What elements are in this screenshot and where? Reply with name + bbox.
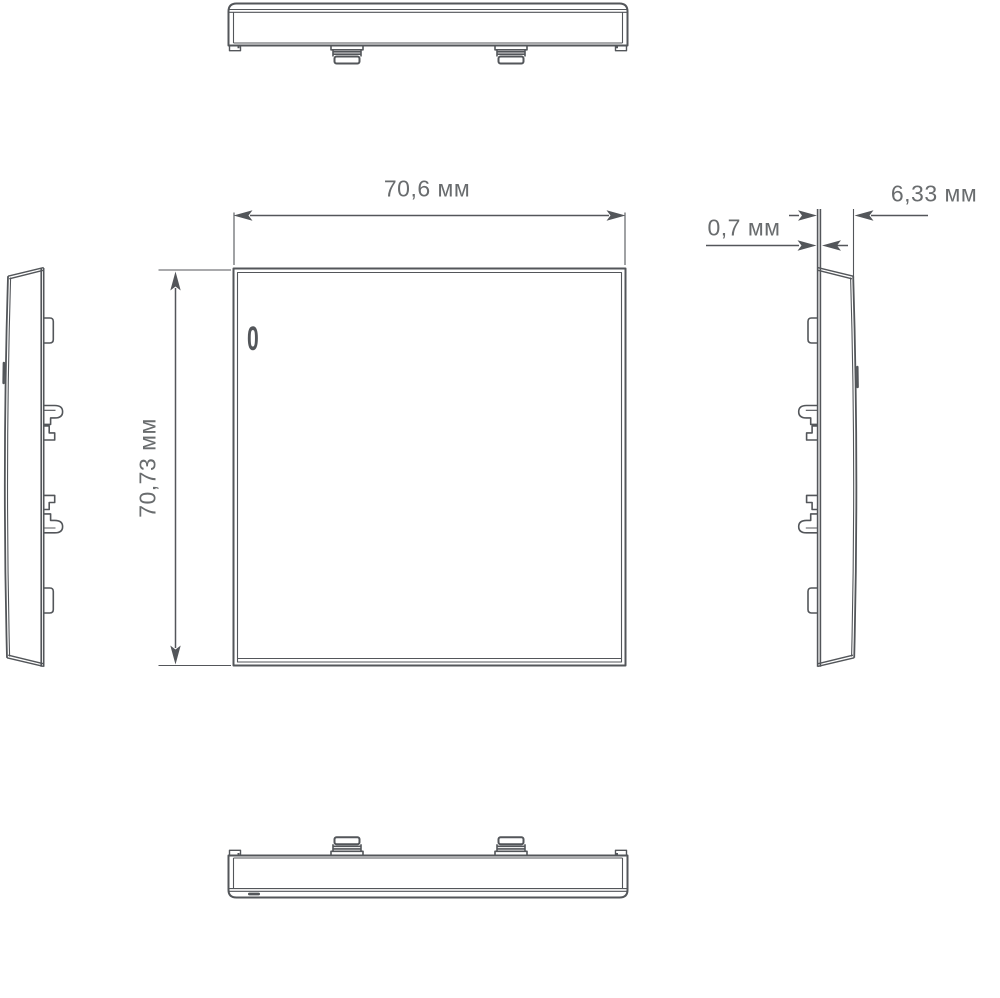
clip-flange xyxy=(331,851,363,855)
top-view xyxy=(229,4,628,64)
front-view-outer-border xyxy=(234,269,626,666)
clip-flange xyxy=(495,851,527,855)
clip-foot xyxy=(335,837,360,844)
thickness-dimension xyxy=(706,240,848,250)
dim-arrow-right-icon xyxy=(798,240,817,250)
thickness-dimension-label: 0,7 мм xyxy=(708,217,781,240)
clip-flange xyxy=(495,46,527,50)
right-view-front-curve-inner xyxy=(851,278,854,657)
clip-foot xyxy=(335,57,360,64)
technical-drawing-page: 70,6 мм 70,73 мм 0,7 мм 6,33 мм 0 xyxy=(0,0,1000,998)
clip-flange xyxy=(331,46,363,50)
left-view-front-curve-inner xyxy=(8,278,11,657)
clip-ribs xyxy=(333,844,361,851)
clip-ribs xyxy=(497,50,525,57)
right-view-back-edge xyxy=(818,209,821,667)
front-panel-marking: 0 xyxy=(247,322,259,356)
top-view-inner-lines xyxy=(234,12,623,43)
bottom-view-inner-lines xyxy=(234,858,623,889)
height-extension-lines xyxy=(159,270,232,666)
dim-arrow-right-icon xyxy=(607,210,626,220)
bottom-view-marking-dash xyxy=(248,893,260,896)
top-view-clip-right xyxy=(495,46,527,64)
front-view-inner-border xyxy=(238,273,622,663)
top-view-clip-left xyxy=(331,46,363,64)
dim-arrow-up-icon xyxy=(170,272,180,291)
dim-arrow-down-icon xyxy=(170,646,180,665)
clip-ribs xyxy=(497,844,525,851)
bottom-view-lip-lines xyxy=(229,889,628,892)
bottom-view-clip-left xyxy=(331,837,363,855)
height-dimension xyxy=(159,270,232,666)
width-dimension-label: 70,6 мм xyxy=(384,178,470,201)
left-side-view xyxy=(4,268,63,667)
right-view-edge-caps xyxy=(818,268,855,667)
clip-ribs xyxy=(333,50,361,57)
clip-foot xyxy=(499,57,524,64)
left-view-back-edge xyxy=(41,268,44,667)
width-dimension xyxy=(234,210,626,265)
front-view xyxy=(234,269,626,666)
clip-foot xyxy=(499,837,524,844)
depth-dimension-label: 6,33 мм xyxy=(891,183,977,206)
right-side-view xyxy=(799,209,858,667)
depth-dimension xyxy=(789,209,928,278)
bottom-view-clip-right xyxy=(495,837,527,855)
dim-arrow-left-icon xyxy=(855,210,874,220)
top-view-lip-lines xyxy=(229,10,628,13)
dim-arrow-left-icon xyxy=(234,210,253,220)
right-view-clips xyxy=(799,318,818,613)
width-extension-lines xyxy=(234,213,625,266)
height-dimension-label: 70,73 мм xyxy=(137,418,160,518)
left-view-edge-caps xyxy=(7,268,44,667)
left-view-clips xyxy=(44,318,63,613)
bottom-view xyxy=(229,837,628,897)
dim-arrow-right-icon xyxy=(798,210,817,220)
